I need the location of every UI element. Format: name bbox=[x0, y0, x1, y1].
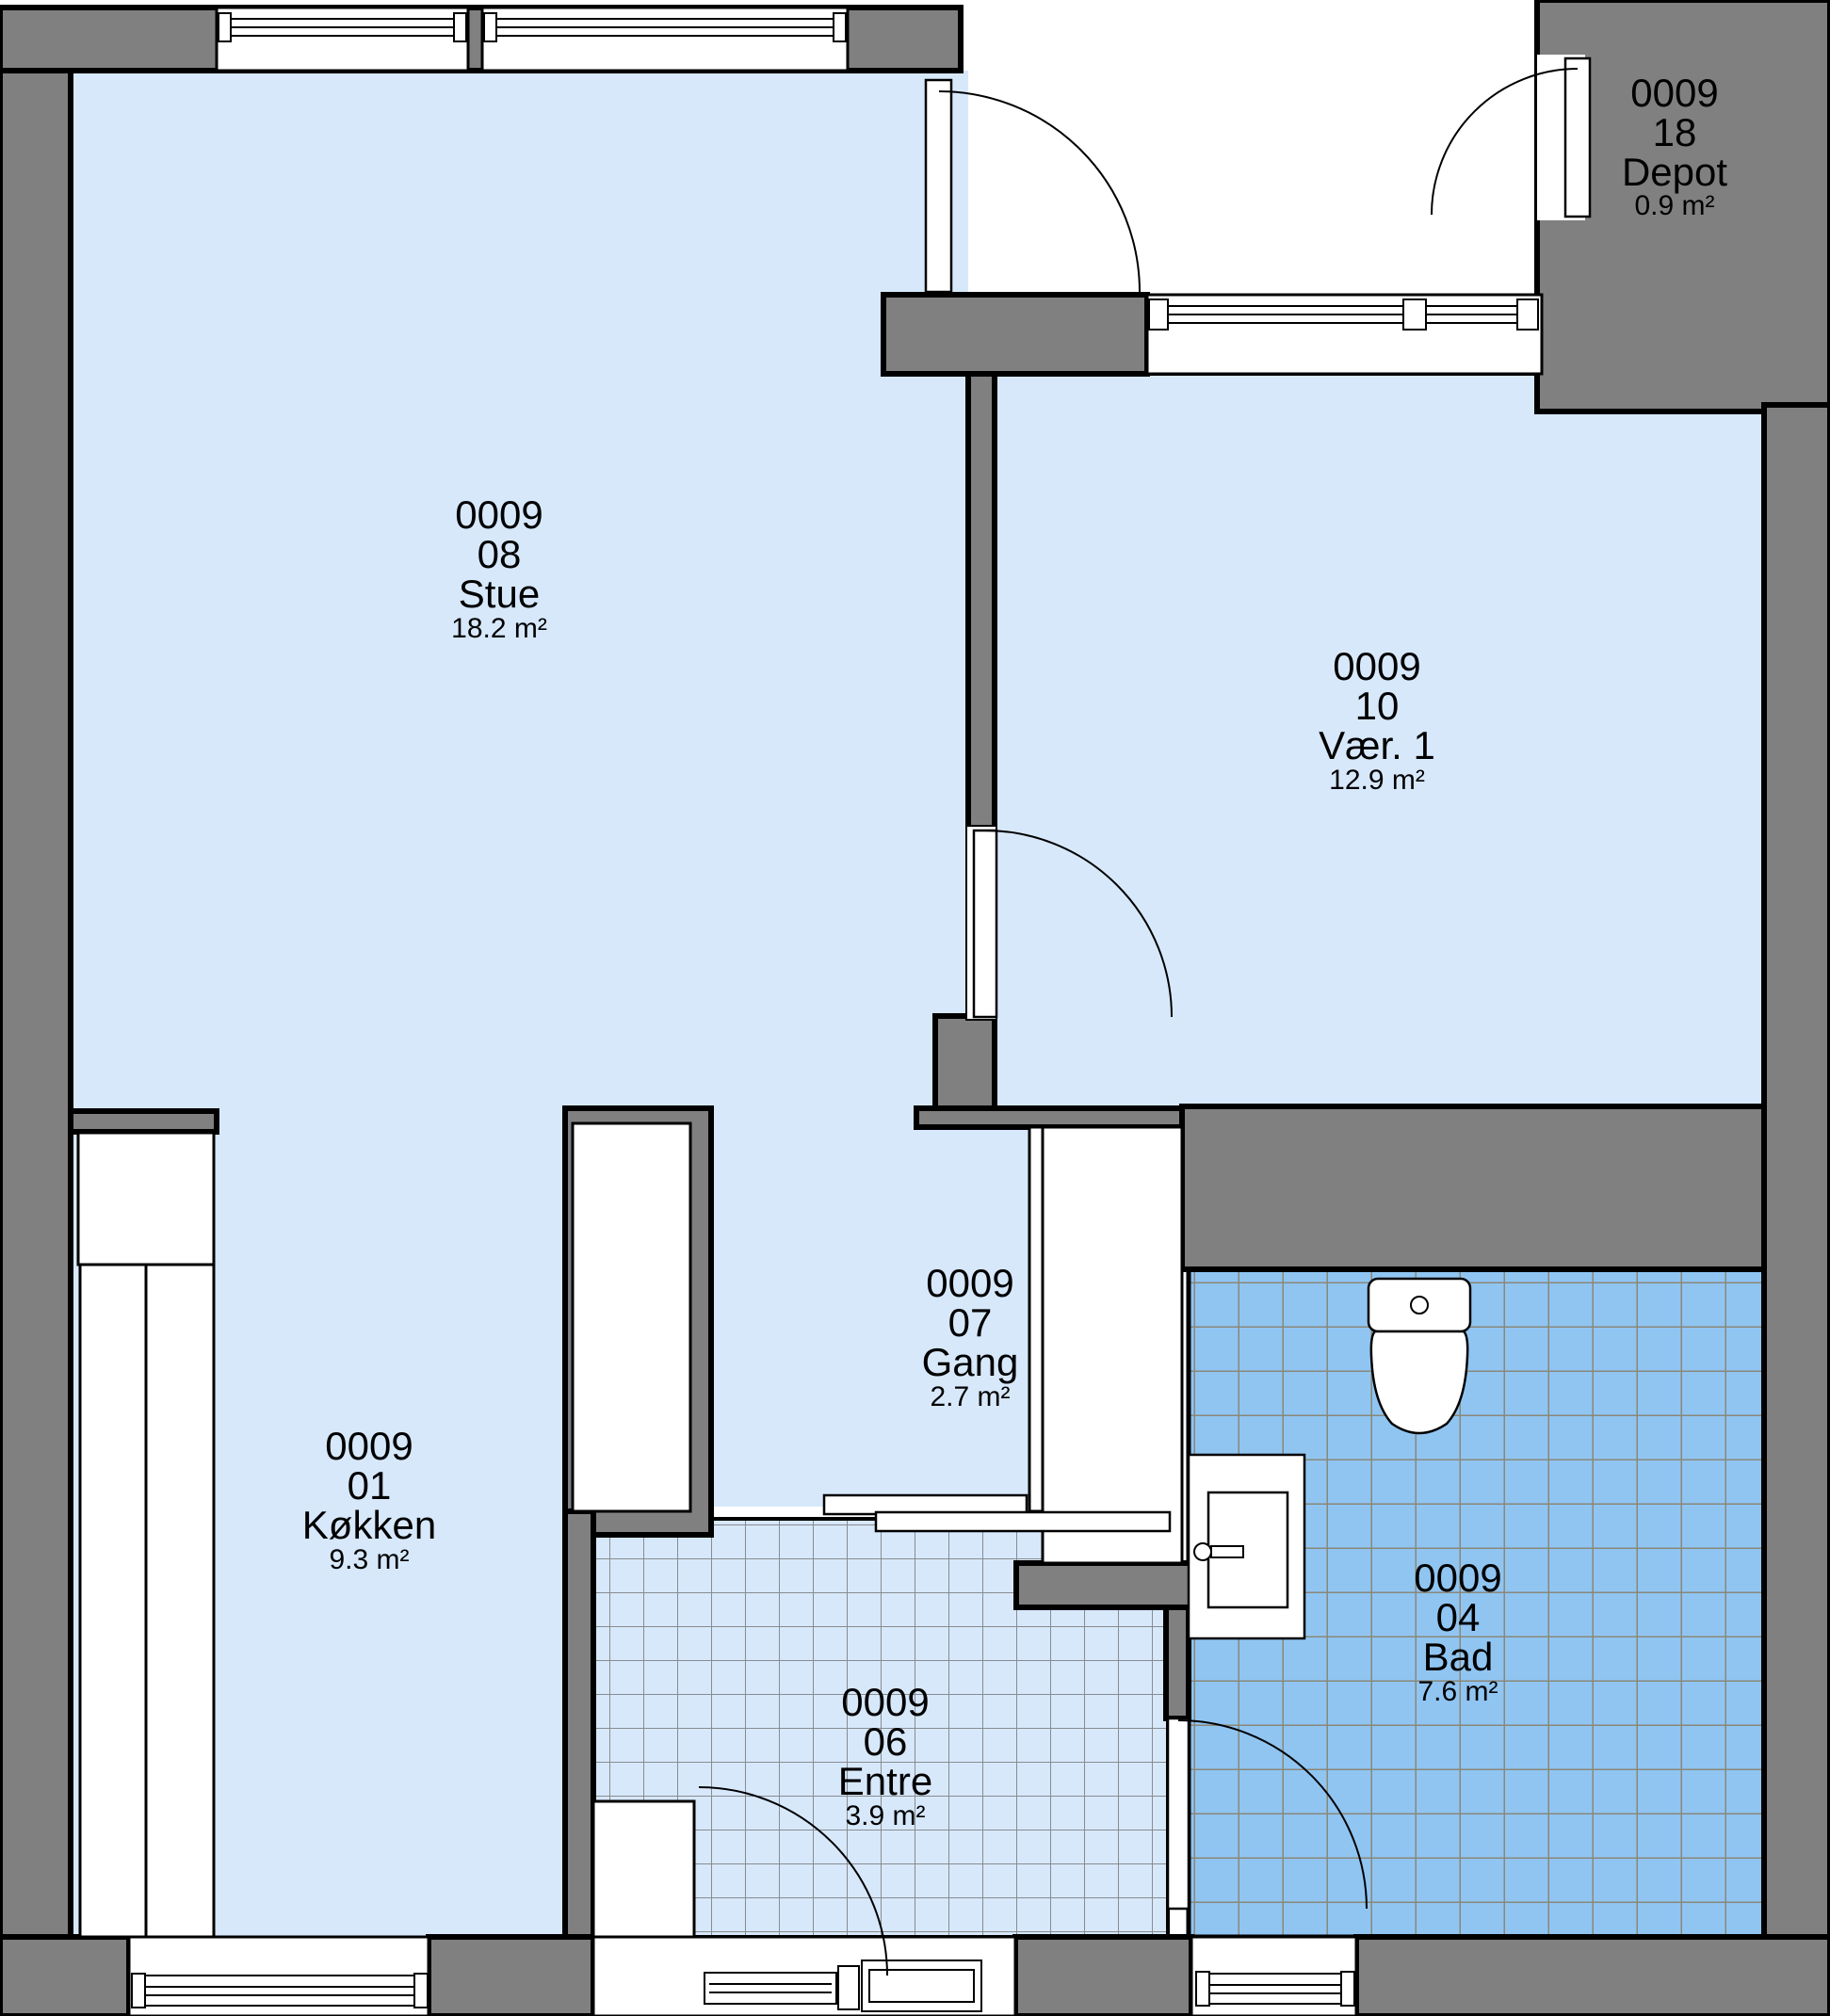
room-label-project: 0009 bbox=[1333, 644, 1420, 688]
light-partitions bbox=[1029, 1127, 1182, 1563]
room-label-name: Depot bbox=[1622, 150, 1727, 194]
wardrobe-entre bbox=[593, 1801, 694, 1937]
room-label-name: Entre bbox=[838, 1759, 932, 1803]
room-label-number: 10 bbox=[1355, 684, 1400, 728]
wall-segment bbox=[71, 1111, 217, 1132]
depot-door-leaf bbox=[1565, 58, 1590, 217]
room-label-project: 0009 bbox=[926, 1261, 1013, 1305]
room-label-name: Køkken bbox=[302, 1503, 436, 1547]
room-label-project: 0009 bbox=[1630, 71, 1718, 115]
door-post bbox=[838, 1966, 859, 2009]
toilet bbox=[1368, 1279, 1470, 1433]
room-label-area: 0.9 m² bbox=[1634, 190, 1714, 221]
duct-shaft bbox=[1043, 1127, 1182, 1563]
faucet-handle bbox=[1211, 1546, 1243, 1557]
room-label-number: 07 bbox=[948, 1300, 993, 1345]
room-label-number: 18 bbox=[1653, 110, 1697, 154]
vaer1-door-leaf bbox=[974, 831, 996, 1017]
room-label-area: 18.2 m² bbox=[451, 613, 547, 644]
room-label-project: 0009 bbox=[841, 1680, 929, 1724]
balcony-door-leaf bbox=[926, 80, 951, 292]
room-label-name: Vær. 1 bbox=[1319, 723, 1435, 767]
balcony-door-swing-arc bbox=[939, 91, 1140, 292]
washbasin bbox=[1189, 1455, 1304, 1638]
wall-segment bbox=[429, 1937, 593, 2016]
wall-segment bbox=[1182, 1106, 1764, 1269]
wall-segment bbox=[916, 1108, 1182, 1127]
wall-segment bbox=[1015, 1937, 1191, 2016]
thin-wall bbox=[1029, 1127, 1043, 1511]
kitchen-counter bbox=[78, 1133, 214, 1937]
window-stue-left bbox=[217, 8, 468, 71]
room-label-project: 0009 bbox=[455, 492, 543, 537]
room-label-number: 04 bbox=[1436, 1595, 1481, 1639]
room-label-number: 01 bbox=[348, 1463, 392, 1508]
room-label-area: 2.7 m² bbox=[930, 1381, 1010, 1412]
depot-door bbox=[1432, 55, 1590, 220]
toilet-flush-button bbox=[1411, 1297, 1428, 1314]
room-label-project: 0009 bbox=[1414, 1556, 1501, 1600]
wall-segment bbox=[1356, 1937, 1830, 2016]
floor-plan-page: 0009 08 Stue 18.2 m² 0009 10 Vær. 1 12.9… bbox=[0, 0, 1830, 2016]
wall-segment bbox=[0, 1937, 129, 2016]
wall-segment bbox=[1764, 405, 1830, 2016]
wall-segment bbox=[0, 8, 71, 2016]
room-label-name: Gang bbox=[922, 1340, 1019, 1384]
faucet-icon bbox=[1194, 1543, 1211, 1560]
bad-door-leaf bbox=[1168, 1718, 1189, 1909]
room-label-number: 08 bbox=[478, 532, 522, 576]
room-label-name: Bad bbox=[1423, 1635, 1494, 1679]
floor-plan-canvas: 0009 08 Stue 18.2 m² 0009 10 Vær. 1 12.9… bbox=[0, 0, 1830, 2016]
sliding-door-panel bbox=[876, 1512, 1170, 1531]
room-label-name: Stue bbox=[459, 572, 540, 616]
window-stue-right bbox=[482, 8, 848, 71]
window-koekken bbox=[129, 1937, 429, 2016]
wall-segment bbox=[968, 374, 995, 829]
wall-segment bbox=[1016, 1563, 1190, 1607]
wall-segment bbox=[883, 295, 1147, 374]
room-label-number: 06 bbox=[864, 1719, 908, 1764]
wall-segment bbox=[1166, 1607, 1189, 1718]
room-label-project: 0009 bbox=[325, 1424, 413, 1468]
window-bad bbox=[1191, 1937, 1356, 2016]
room-label-area: 9.3 m² bbox=[329, 1544, 409, 1575]
room-label-area: 12.9 m² bbox=[1329, 765, 1425, 796]
wardrobe bbox=[573, 1123, 690, 1511]
room-label-area: 7.6 m² bbox=[1417, 1676, 1498, 1707]
window-vaer1 bbox=[1147, 295, 1542, 374]
room-label-area: 3.9 m² bbox=[845, 1800, 925, 1831]
